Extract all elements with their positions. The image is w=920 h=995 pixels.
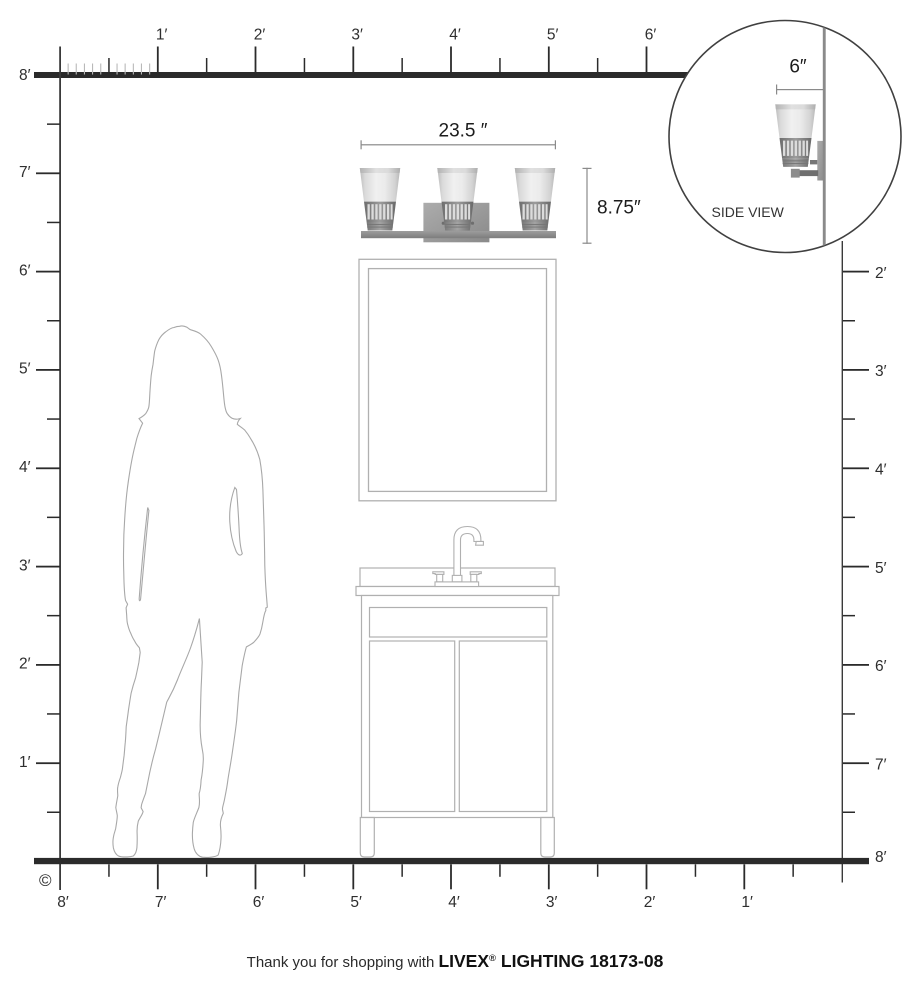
svg-text:4′: 4′	[448, 894, 460, 911]
svg-text:8′: 8′	[875, 849, 887, 866]
svg-text:1′: 1′	[19, 754, 31, 771]
svg-text:4′: 4′	[875, 462, 887, 479]
svg-text:5′: 5′	[875, 560, 887, 577]
svg-text:23.5 ″: 23.5 ″	[439, 121, 488, 142]
svg-text:5′: 5′	[19, 361, 31, 378]
svg-text:4′: 4′	[449, 27, 461, 44]
svg-text:3′: 3′	[19, 557, 31, 574]
svg-text:6′: 6′	[875, 658, 887, 675]
svg-text:SIDE VIEW: SIDE VIEW	[712, 204, 785, 220]
svg-text:6″: 6″	[789, 57, 807, 78]
svg-text:7′: 7′	[875, 757, 887, 774]
svg-text:3′: 3′	[546, 894, 558, 911]
svg-text:3′: 3′	[875, 363, 887, 380]
svg-text:5′: 5′	[547, 27, 559, 44]
svg-text:8′: 8′	[57, 894, 69, 911]
svg-text:3′: 3′	[351, 27, 363, 44]
svg-text:7′: 7′	[19, 164, 31, 181]
svg-text:7′: 7′	[155, 894, 167, 911]
svg-text:6′: 6′	[253, 894, 265, 911]
svg-text:2′: 2′	[875, 265, 887, 282]
svg-text:1′: 1′	[741, 894, 753, 911]
svg-text:5′: 5′	[350, 894, 362, 911]
svg-text:8.75″: 8.75″	[597, 198, 641, 219]
svg-text:6′: 6′	[19, 262, 31, 279]
svg-text:Thank you for shopping with LI: Thank you for shopping with LIVEX® LIGHT…	[247, 951, 664, 971]
svg-text:4′: 4′	[19, 459, 31, 476]
svg-text:1′: 1′	[156, 27, 168, 44]
svg-text:2′: 2′	[254, 27, 266, 44]
svg-text:2′: 2′	[19, 656, 31, 673]
svg-text:6′: 6′	[645, 27, 657, 44]
svg-text:8′: 8′	[19, 67, 31, 84]
svg-text:©: ©	[39, 871, 52, 890]
svg-text:2′: 2′	[644, 894, 656, 911]
